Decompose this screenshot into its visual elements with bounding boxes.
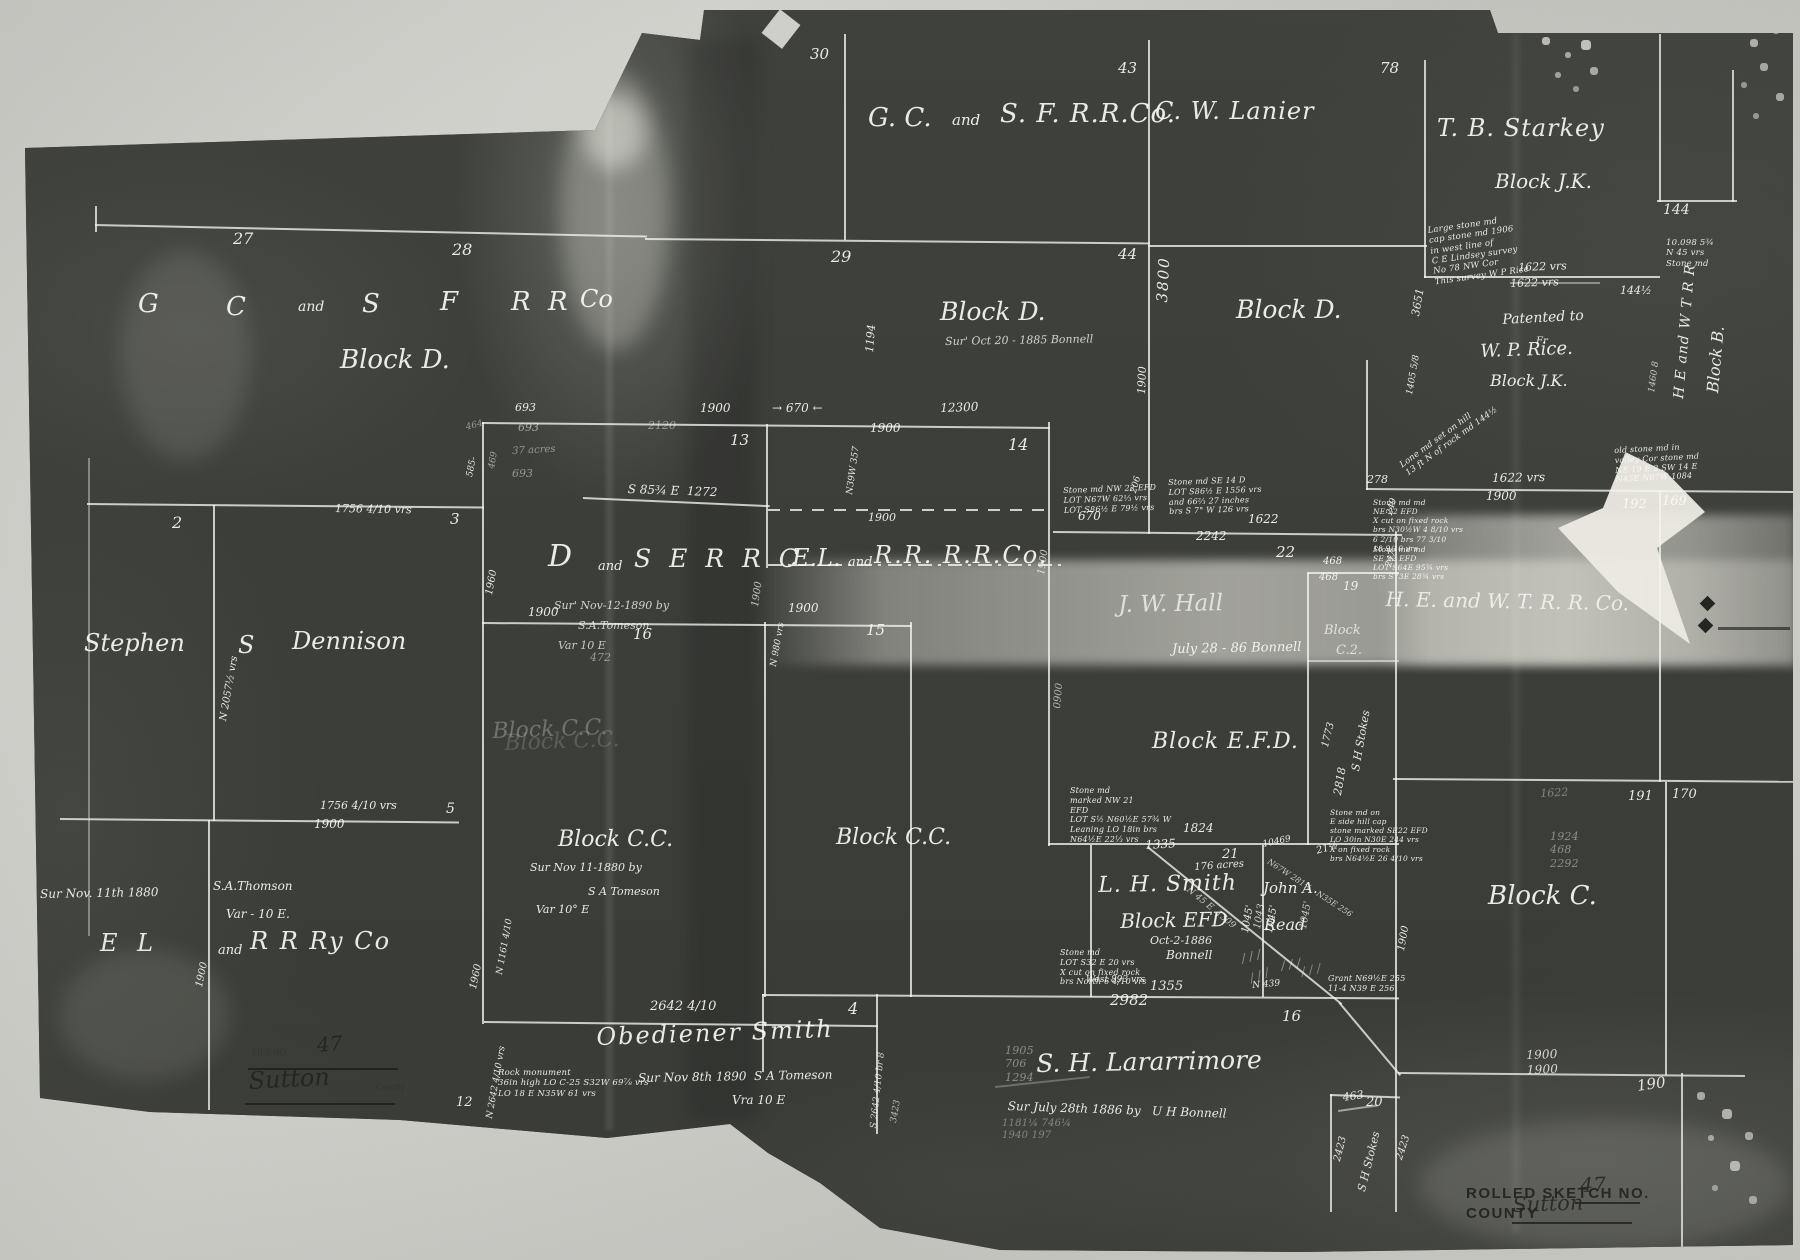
map-label: 1960 [484,569,499,596]
map-label: S [362,290,380,319]
map-label: 192 [1622,498,1647,512]
map-label: L. H. Smith [1098,872,1237,899]
map-label: 190 [1636,1074,1667,1094]
map-label: 13 [730,432,749,449]
map-label: 1622 vrs [1492,471,1545,485]
map-label: E L [100,930,159,956]
map-label: S.A.Thomson [213,880,293,893]
map-label: 3800 [1154,256,1173,303]
map-label: Grant N69½E 255 11-4 N39 E 256 [1328,974,1405,994]
map-label: 468 [1323,556,1342,567]
map-label: 191 [1628,790,1653,804]
map-label: 1756 4/10 vrs [320,800,397,812]
map-label: F [440,288,458,317]
map-label: C.2. [1336,644,1362,658]
map-label: 4 [848,1000,858,1018]
map-label: FILE NO. [252,1048,289,1058]
survey-line [1395,532,1397,1212]
map-label: E.L. [792,545,841,571]
map-label: 1900 [870,422,901,435]
map-label: 12 [456,1096,473,1110]
map-label: 2242 [1196,530,1227,543]
map-label: 20 [1366,1096,1383,1110]
map-label: 1773 [1320,721,1337,748]
map-label: 78 [1380,60,1399,77]
survey-line [1732,70,1734,202]
map-label: 2 [172,514,182,532]
survey-line [844,34,846,240]
map-label: N 1161 4/10 [496,918,516,976]
map-label: Block B. [1704,325,1727,393]
map-label: S. F. R.R.Co. [1000,100,1176,129]
map-label: Bonnell [1166,949,1212,962]
map-label: and [298,300,324,315]
survey-line [1148,245,1427,247]
map-label: Block [1324,624,1361,638]
map-label: Stephen [84,630,185,656]
map-label: 1194 [864,324,878,353]
map-label: Lone md set on hill 13 ft N of rock md 1… [1398,397,1500,479]
survey-line [1330,1094,1400,1098]
map-label: Block C.C. [504,728,620,756]
map-label: Stone md marked NW 21 EFD LOT S½ N60½E 5… [1070,786,1171,845]
map-label: 30 [810,46,829,63]
map-label: 1355 [1150,980,1183,994]
map-label: 169 [1662,495,1687,509]
map-label: Block C. [1488,882,1597,911]
map-label: Co [580,286,613,312]
map-label: S E R R C [634,545,803,573]
map-label: 693 [518,422,539,434]
map-label: 1900 [1396,925,1411,952]
map-label: 1460 8 [1648,361,1662,394]
map-label: Sur Nov. 11th 1880 [40,886,159,901]
map-label: , 19 [352,1150,372,1164]
filed-date: March 25 [272,1131,371,1158]
commissioner-name: Bascom Giles [236,1162,352,1183]
map-label: 693 [512,468,533,480]
map-label: 3 [450,511,460,528]
survey-line [1307,573,1309,845]
map-label: 0900 [1052,683,1065,709]
map-label: N 2057½ vrs [218,655,240,722]
map-label: Obediener Smith [596,1016,834,1051]
map-label: 1756 4/10 vrs [335,503,412,516]
map-label: 1824 [1183,822,1214,835]
map-label: and [218,944,242,958]
map-label: Block J.K. [1490,372,1568,390]
map-label: 1900 [314,818,345,831]
map-label: G. C. [868,104,932,133]
map-label: and [952,112,980,129]
survey-line [245,1103,395,1105]
map-label: 1405 5/8 [1406,354,1423,395]
map-label: Block D. [340,346,450,375]
survey-line [1366,360,1368,490]
map-label: Stone md SE 14 D LOT S86½ E 1556 vrs and… [1168,475,1263,517]
county-name: Sutton [248,1064,330,1095]
map-label: Sur Nov 11-1880 by [530,862,642,874]
speckle-cluster-bottom-right [1700,1095,1702,1097]
survey-line [1665,782,1667,1075]
map-label: old stone md in valley Cor stone md NE 1… [1614,442,1701,485]
map-label: → 670 ← [772,402,823,415]
survey-line [95,206,97,232]
map-label: G [138,290,159,319]
scanned-map-page: 30437827282944144G. C.andS. F. R.R.Co.C.… [0,0,1800,1260]
map-label: Com'r [344,1172,374,1185]
survey-line [1338,1002,1401,1076]
map-label: S A Tomeson [588,886,660,898]
survey-line [1053,531,1402,536]
survey-line [1398,1072,1745,1077]
map-label: 1622 [1540,787,1569,801]
map-label: 1622 [1248,513,1279,526]
map-label: 3651 [1410,287,1427,317]
stain-left [120,250,250,460]
map-label: Block C.C. [836,826,951,850]
map-label: N39W 357 [846,446,863,496]
map-label: Var - 10 E. [226,908,290,921]
map-label: 1181¼ 746¼ 1940 197 [1002,1118,1071,1142]
map-label: J. W. Hall [1118,591,1223,618]
map-label: File Clerk [352,1228,392,1239]
map-label: D [548,540,572,573]
map-label: Vra 10 E [732,1094,785,1107]
map-label: C [226,293,246,322]
map-label: 1900 [1486,490,1517,503]
map-label: S 85¾ E 1272 [628,483,718,499]
map-label: 1900 1900 [1526,1047,1558,1077]
map-label: Sur' Nov-12-1890 by [554,600,669,612]
map-label: 19 [1343,580,1358,593]
map-label: Block J.K. [1495,170,1592,192]
map-label: Block E.F.D. [1152,730,1299,754]
map-label: and [598,560,622,574]
map-label: 472 [590,652,611,664]
survey-line [1718,627,1790,630]
survey-line [60,818,459,823]
map-label: 1900 [788,602,819,615]
map-label: 27 [233,230,253,248]
map-label: Block D. [1236,296,1342,324]
map-label: 1622 vrs [1518,260,1567,274]
map-label: Oct-2-1886 [1150,935,1212,947]
map-label: 29 [831,248,851,266]
survey-line [1659,490,1661,782]
map-label: Filed [240,1150,267,1164]
map-label: and [848,556,872,570]
survey-map: 30437827282944144G. C.andS. F. R.R.Co.C.… [0,0,1800,1260]
survey-line [213,505,215,821]
map-label: July 28 - 86 Bonnell [1172,641,1301,658]
map-label: 43 [376,1136,399,1156]
map-label: 1335 [1145,837,1176,852]
speckle-cluster-far-right [1735,20,1737,22]
survey-line [1681,1073,1683,1247]
map-label: S. H. Lararrimore [1036,1046,1262,1077]
map-label: 10469 [1262,835,1292,851]
map-label: 468 [1319,572,1338,583]
map-label: 2120 [648,420,676,432]
map-label: 37 acres [512,444,556,457]
map-label: 12300 [940,401,979,416]
map-label: 144 [1663,203,1690,218]
map-label: ∕ ∕ ∕ [1240,948,1263,966]
stamp-county-value: Sutton [1512,1192,1584,1218]
speckle-cluster-top-right [1545,40,1547,42]
map-label: 43 [1118,60,1137,77]
map-label: Sur Nov 8th 1890 S A Tomeson [638,1069,833,1086]
map-label: Var 10° E [536,904,589,916]
map-label: Stone md md SE 22 EFD LOT S64E 95¾ vrs b… [1373,545,1448,582]
map-label: 16 [633,626,652,643]
map-label: Stone md on E side hill cap stone marked… [1330,808,1428,863]
map-label: 1900 [868,512,896,524]
map-label: 278 [1367,474,1388,486]
map-label: H. E. and W. T. R. R. Co. [1386,588,1630,614]
map-label: H E and W T R R [1672,263,1699,399]
map-label: R [548,288,568,317]
map-label: Block C.C. [558,828,673,852]
map-label: 44 [1118,246,1137,263]
map-label: 5 [446,802,455,817]
stain-top-center-bright [583,95,645,170]
survey-line [88,458,90,936]
map-label: 14 [1008,436,1028,454]
map-label: 2423 [1332,1135,1349,1162]
map-label: Dennison [292,628,406,654]
paper-flap [762,9,801,49]
map-label: West 893 vrs [1086,976,1145,986]
map-label: 469 [488,451,501,470]
fold-shadow [688,40,758,1120]
survey-line [170,1128,500,1129]
survey-line [232,1232,402,1234]
map-label: 2818 [1332,766,1349,796]
map-label: 15 [866,622,885,639]
map-label: ∕ ∕ ∕ [1300,962,1322,979]
map-label: 1045' [1298,900,1314,930]
map-label: 170 [1672,788,1697,802]
stamp-sketch-number: 47 [1580,1173,1606,1196]
map-label: County [376,1082,405,1093]
survey-line [1307,660,1399,662]
survey-line [1330,1094,1332,1212]
clerk-signature: WM von Rosenberg [230,1168,460,1209]
map-label: C. W. Lanier [1155,98,1315,124]
map-label: T. B. Starkey [1437,115,1605,141]
map-label: 1924 468 2292 [1550,830,1579,870]
map-label: 144½ [1620,285,1652,297]
map-label: We [56,1190,94,1218]
map-label: John A. [1263,880,1318,897]
map-label: 2642 4/10 [650,1000,716,1014]
survey-line [1659,34,1661,202]
map-label: R R Ry Co [250,928,391,954]
map-label: Rock monument 36in high LO C-25 S32W 69⅞… [498,1068,649,1099]
map-label: Sur' Oct 20 - 1885 Bonnell [945,333,1093,348]
map-label: R.R. R.R.Co. [874,542,1048,568]
map-label: 1900 [528,606,559,619]
map-label: 1905 706 1294 [1005,1044,1034,1084]
survey-line [1424,60,1426,278]
map-label: R [511,288,531,317]
map-label: S 2642 4/10 br 8 [870,1052,888,1129]
survey-line [1366,488,1793,493]
map-label: 693 [515,402,536,414]
map-label: 585- [466,456,480,478]
map-label: Patented to [1502,309,1584,329]
map-label: S [238,632,254,658]
map-label: 670 [1078,510,1101,523]
map-label: 2982 [1110,992,1148,1009]
map-label: 1622 vrs [1510,276,1559,290]
map-label: Block D. [940,298,1046,326]
survey-line [87,503,484,508]
map-label: 3423 [890,1099,904,1123]
map-label: 22 [1276,544,1295,561]
survey-line [764,622,766,997]
map-label: W. P. Rice. [1480,339,1573,362]
map-label: 463 [1342,1089,1364,1104]
map-label: 1900 [1136,366,1149,394]
map-label: S H Stokes [1356,1130,1383,1193]
survey-line [482,422,484,1024]
file-number: 47 [316,1032,343,1056]
map-label: 28 [452,241,472,259]
survey-line [910,622,912,997]
survey-line [1048,422,1050,846]
map-label: 1900 [700,402,731,415]
map-label: 16 [1282,1008,1301,1025]
survey-line [268,1170,408,1172]
survey-line [768,509,1052,511]
survey-line [1393,778,1793,783]
map-label: S H Stokes [1350,709,1373,772]
